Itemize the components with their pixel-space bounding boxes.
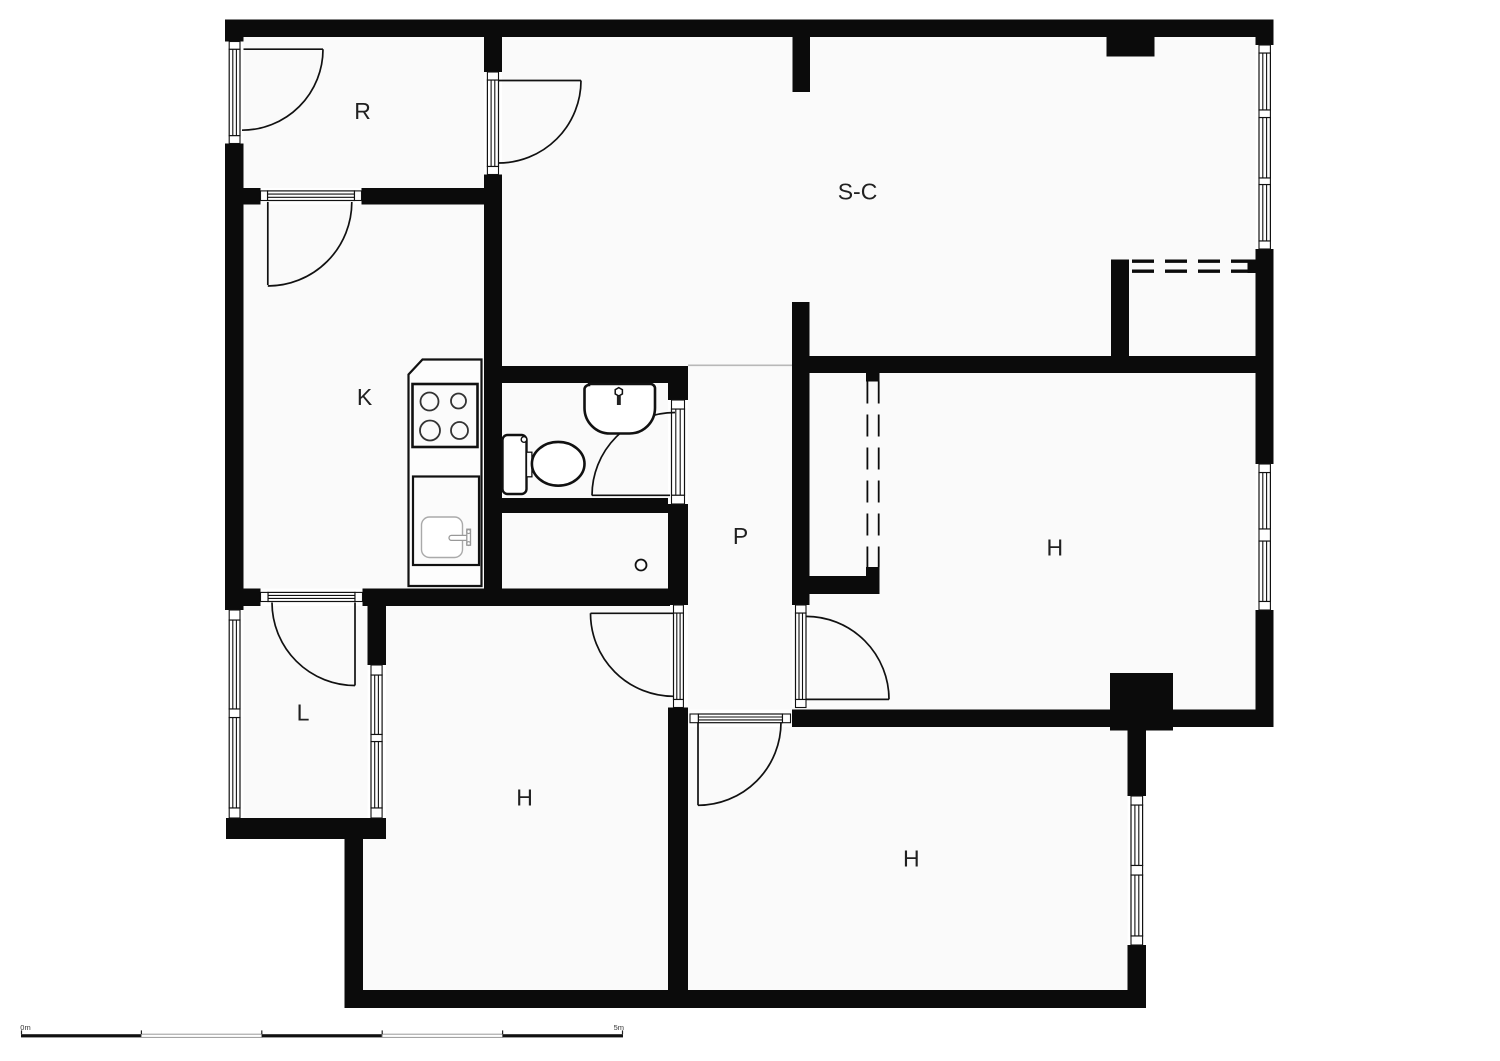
- svg-text:R: R: [354, 98, 371, 124]
- svg-text:L: L: [297, 699, 310, 725]
- svg-text:P: P: [733, 523, 748, 549]
- svg-text:K: K: [357, 384, 373, 410]
- svg-text:H: H: [903, 846, 920, 872]
- svg-text:0m: 0m: [20, 1023, 30, 1032]
- svg-text:H: H: [1046, 534, 1063, 560]
- svg-text:H: H: [516, 785, 533, 811]
- svg-text:S-C: S-C: [838, 178, 878, 204]
- svg-text:5m: 5m: [614, 1023, 624, 1032]
